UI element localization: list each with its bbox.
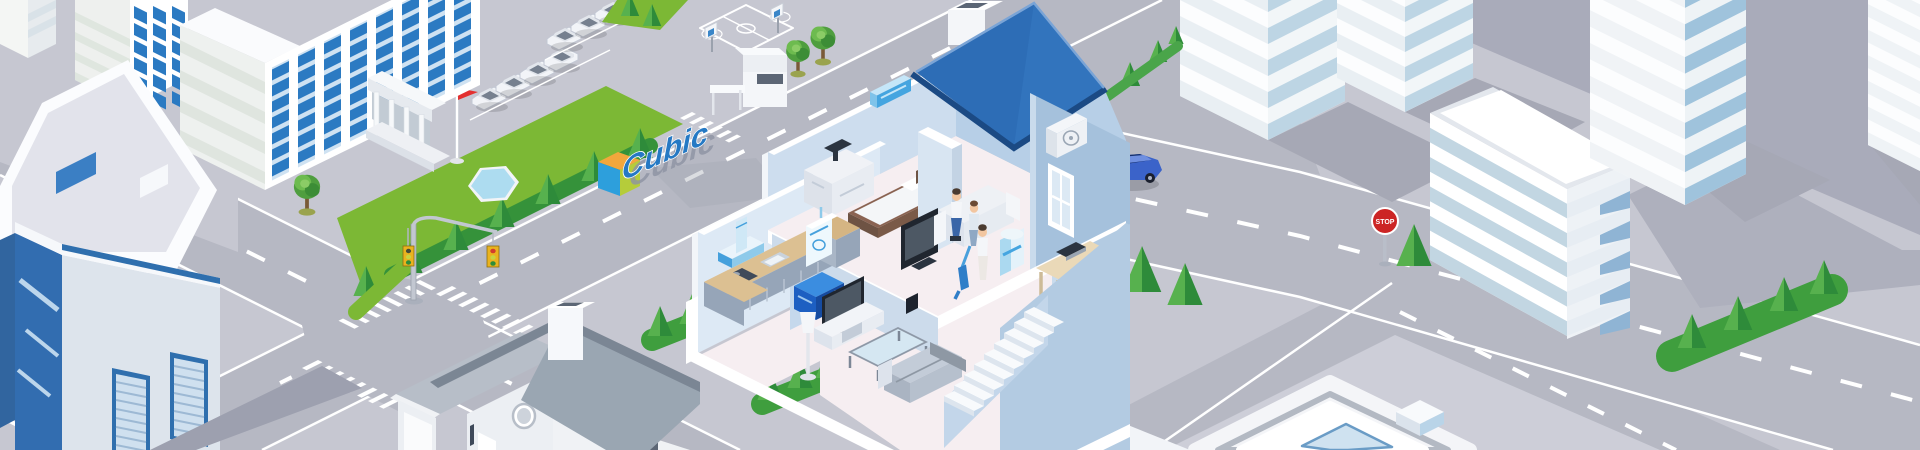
svg-text:STOP: STOP xyxy=(1376,219,1395,226)
